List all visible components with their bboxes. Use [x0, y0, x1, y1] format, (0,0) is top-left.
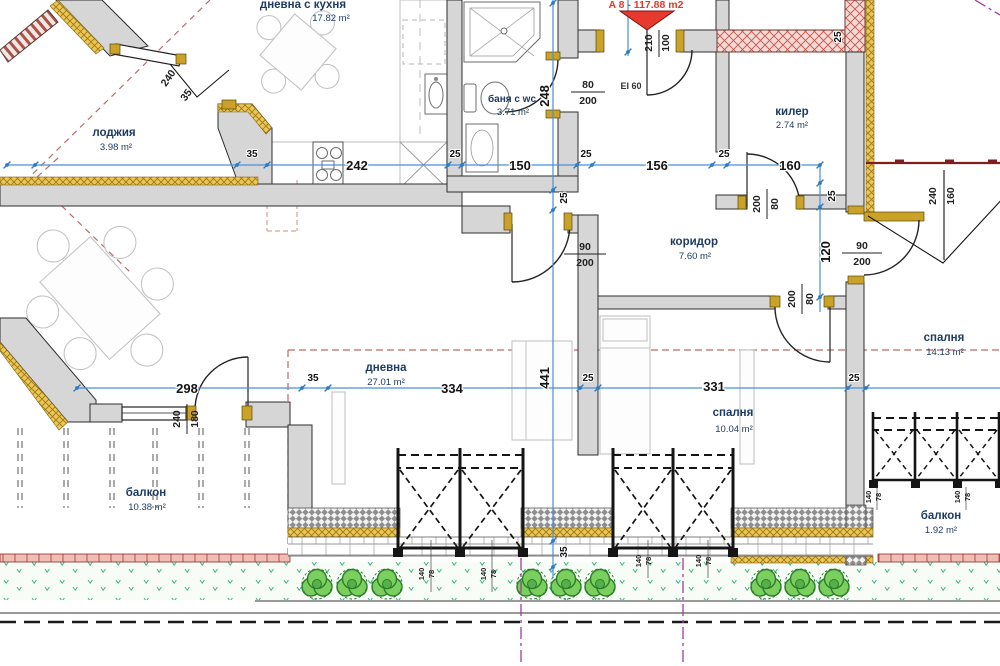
bush-icon [819, 569, 849, 599]
bush-icon [551, 569, 581, 599]
room-label-living: дневна 27.01 m² [365, 362, 407, 388]
wall-h-kitchen-south [0, 184, 462, 206]
svg-text:78: 78 [489, 570, 498, 578]
svg-text:баня с wc: баня с wc [488, 93, 537, 105]
room-label-bedroom-big: спалня 14.13 m² [924, 332, 965, 358]
svg-text:200: 200 [579, 95, 597, 107]
dim-label: 25 [848, 373, 860, 384]
wall-entry-2 [680, 30, 717, 52]
svg-text:17.82 m²: 17.82 m² [312, 13, 350, 24]
bush-icon [372, 569, 402, 599]
dim-label: 242 [346, 158, 368, 173]
door-balcony [110, 44, 252, 420]
svg-text:балкон: балкон [921, 510, 961, 522]
wall-bath-south [447, 176, 578, 192]
wall-bath-east-1 [558, 0, 578, 58]
floor-plan-canvas: 35 242 25 150 25 156 25 160 298 35 334 2… [0, 0, 1000, 666]
svg-text:160: 160 [945, 187, 957, 205]
wall-east [846, 52, 864, 212]
bed [600, 316, 650, 454]
svg-text:78: 78 [963, 493, 972, 501]
kitchen-sink [425, 74, 447, 114]
dim-label: 35 [246, 149, 258, 160]
svg-text:240: 240 [171, 410, 183, 428]
svg-text:100: 100 [660, 34, 672, 52]
svg-text:коридор: коридор [670, 236, 718, 248]
dim-label: 25 [580, 149, 592, 160]
dim-label: 156 [646, 158, 668, 173]
slab-edge [288, 537, 873, 556]
shower [464, 2, 540, 62]
svg-text:35: 35 [178, 87, 195, 104]
insulation-h [0, 177, 258, 185]
door-living [504, 213, 572, 282]
wall-corridor-sw [462, 206, 510, 233]
svg-text:80: 80 [582, 79, 594, 91]
svg-text:140: 140 [634, 555, 643, 568]
wall-balcony-n1 [90, 404, 122, 422]
svg-text:200: 200 [786, 290, 798, 308]
dim-label: 25 [449, 149, 461, 160]
railing-band-right [878, 554, 1000, 562]
insulation-east [866, 0, 874, 212]
svg-text:2.74 m²: 2.74 m² [776, 120, 808, 131]
bedroom-big-window-size: 240 160 [927, 187, 957, 205]
svg-text:140: 140 [694, 555, 703, 568]
room-label-balcony-left: балкон 10.38 m² [126, 487, 166, 513]
window-bay-balcony-right [869, 412, 1000, 488]
grass-band [0, 562, 1000, 600]
dim-label: 35 [559, 546, 570, 558]
railing-band-left [0, 554, 290, 562]
wall-corner-kitchen [218, 104, 272, 188]
bath-fixtures [464, 2, 540, 172]
svg-text:дневна с кухня: дневна с кухня [260, 0, 346, 11]
floor-plan: 35 242 25 150 25 156 25 160 298 35 334 2… [0, 0, 1000, 666]
svg-text:килер: килер [775, 106, 808, 118]
svg-text:27.01 m²: 27.01 m² [367, 377, 405, 388]
svg-text:140: 140 [953, 491, 962, 504]
room-label-corridor: коридор 7.60 m² [670, 236, 718, 262]
svg-text:лоджия: лоджия [92, 127, 135, 139]
dim-label: 160 [779, 158, 801, 173]
dim-label: 25 [559, 192, 570, 204]
svg-text:дневна: дневна [365, 362, 407, 374]
svg-text:спалня: спалня [713, 407, 754, 419]
bedroom-big-door-size: 90 200 [842, 240, 882, 268]
wall-storage-west [716, 0, 729, 152]
bush-icon [785, 569, 815, 599]
svg-text:200: 200 [576, 257, 594, 269]
svg-text:210: 210 [643, 34, 655, 52]
svg-text:80: 80 [769, 198, 781, 210]
svg-text:10.38 m²: 10.38 m² [128, 502, 166, 513]
dim-label: 35 [307, 373, 319, 384]
wall-storage-south-2 [798, 195, 848, 209]
wall-bedroom-east [846, 282, 864, 508]
svg-text:140: 140 [864, 491, 873, 504]
dim-label: 298 [176, 381, 198, 396]
svg-text:90: 90 [579, 241, 591, 253]
bush-icon [302, 569, 332, 599]
svg-text:200: 200 [751, 195, 763, 213]
svg-text:140: 140 [479, 568, 488, 581]
unit-label: A 8 - 117.88 m2 [609, 0, 684, 11]
svg-text:140: 140 [417, 568, 426, 581]
walls [0, 0, 924, 565]
bush-icon [585, 569, 615, 599]
sofa [512, 341, 572, 440]
loggia-railing [0, 10, 58, 62]
dim-label: 334 [441, 381, 463, 396]
wall-bath-east-2 [558, 112, 578, 184]
wall-living-west [288, 425, 312, 509]
svg-text:10.04 m²: 10.04 m² [715, 424, 753, 435]
room-label-storage: килер 2.74 m² [775, 106, 808, 131]
room-label-loggia: лоджия 3.98 m² [92, 127, 135, 153]
dim-label: 331 [703, 379, 725, 394]
tv-stand [332, 392, 345, 484]
svg-text:90: 90 [856, 240, 868, 252]
bush-icon [337, 569, 367, 599]
storage-door-size: 200 80 [751, 189, 781, 219]
bath-door-size: 80 200 [571, 79, 605, 107]
bedroom-small-door-size: 200 80 [786, 284, 816, 314]
room-label-balcony-right: балкон 1.92 m² [921, 510, 961, 536]
wall-corridor-south [598, 296, 775, 309]
bush-icon [751, 569, 781, 599]
svg-text:78: 78 [427, 570, 436, 578]
svg-text:3.71 m²: 3.71 m² [497, 107, 529, 118]
entrance-marker: A 8 - 117.88 m2 [609, 0, 684, 30]
dim-label: 25 [833, 31, 844, 43]
svg-text:78: 78 [704, 557, 713, 565]
dim-label: 25 [827, 190, 838, 202]
svg-text:14.13 m²: 14.13 m² [926, 347, 964, 358]
dim-label: 150 [509, 158, 531, 173]
svg-text:80: 80 [804, 293, 816, 305]
svg-text:7.60 m²: 7.60 m² [679, 251, 711, 262]
kitchen-counter-side [400, 0, 447, 142]
dim-label: 25 [718, 149, 730, 160]
dim-label: 120 [818, 241, 833, 263]
svg-text:200: 200 [853, 256, 871, 268]
svg-text:78: 78 [874, 493, 883, 501]
svg-text:78: 78 [644, 557, 653, 565]
svg-text:3.98 m²: 3.98 m² [100, 142, 132, 153]
upper-cabinet [403, 20, 445, 64]
wall-brick-east [845, 0, 865, 52]
parapet-insulation [288, 528, 873, 537]
svg-text:1.92 m²: 1.92 m² [925, 525, 957, 536]
room-label-kitchen: дневна с кухня 17.82 m² [260, 0, 350, 24]
svg-text:180: 180 [189, 410, 201, 428]
wall-balcony-n2 [246, 402, 290, 427]
svg-text:240: 240 [927, 187, 939, 205]
svg-text:спалня: спалня [924, 332, 965, 344]
section-line [866, 160, 1000, 164]
dim-label: 441 [537, 367, 552, 389]
dim-label: 25 [582, 373, 594, 384]
dim-label: 248 [537, 85, 552, 107]
fire-rating-label: EI 60 [620, 81, 641, 91]
room-labels: дневна с кухня 17.82 m² лоджия 3.98 m² б… [92, 0, 964, 536]
svg-text:балкон: балкон [126, 487, 166, 499]
